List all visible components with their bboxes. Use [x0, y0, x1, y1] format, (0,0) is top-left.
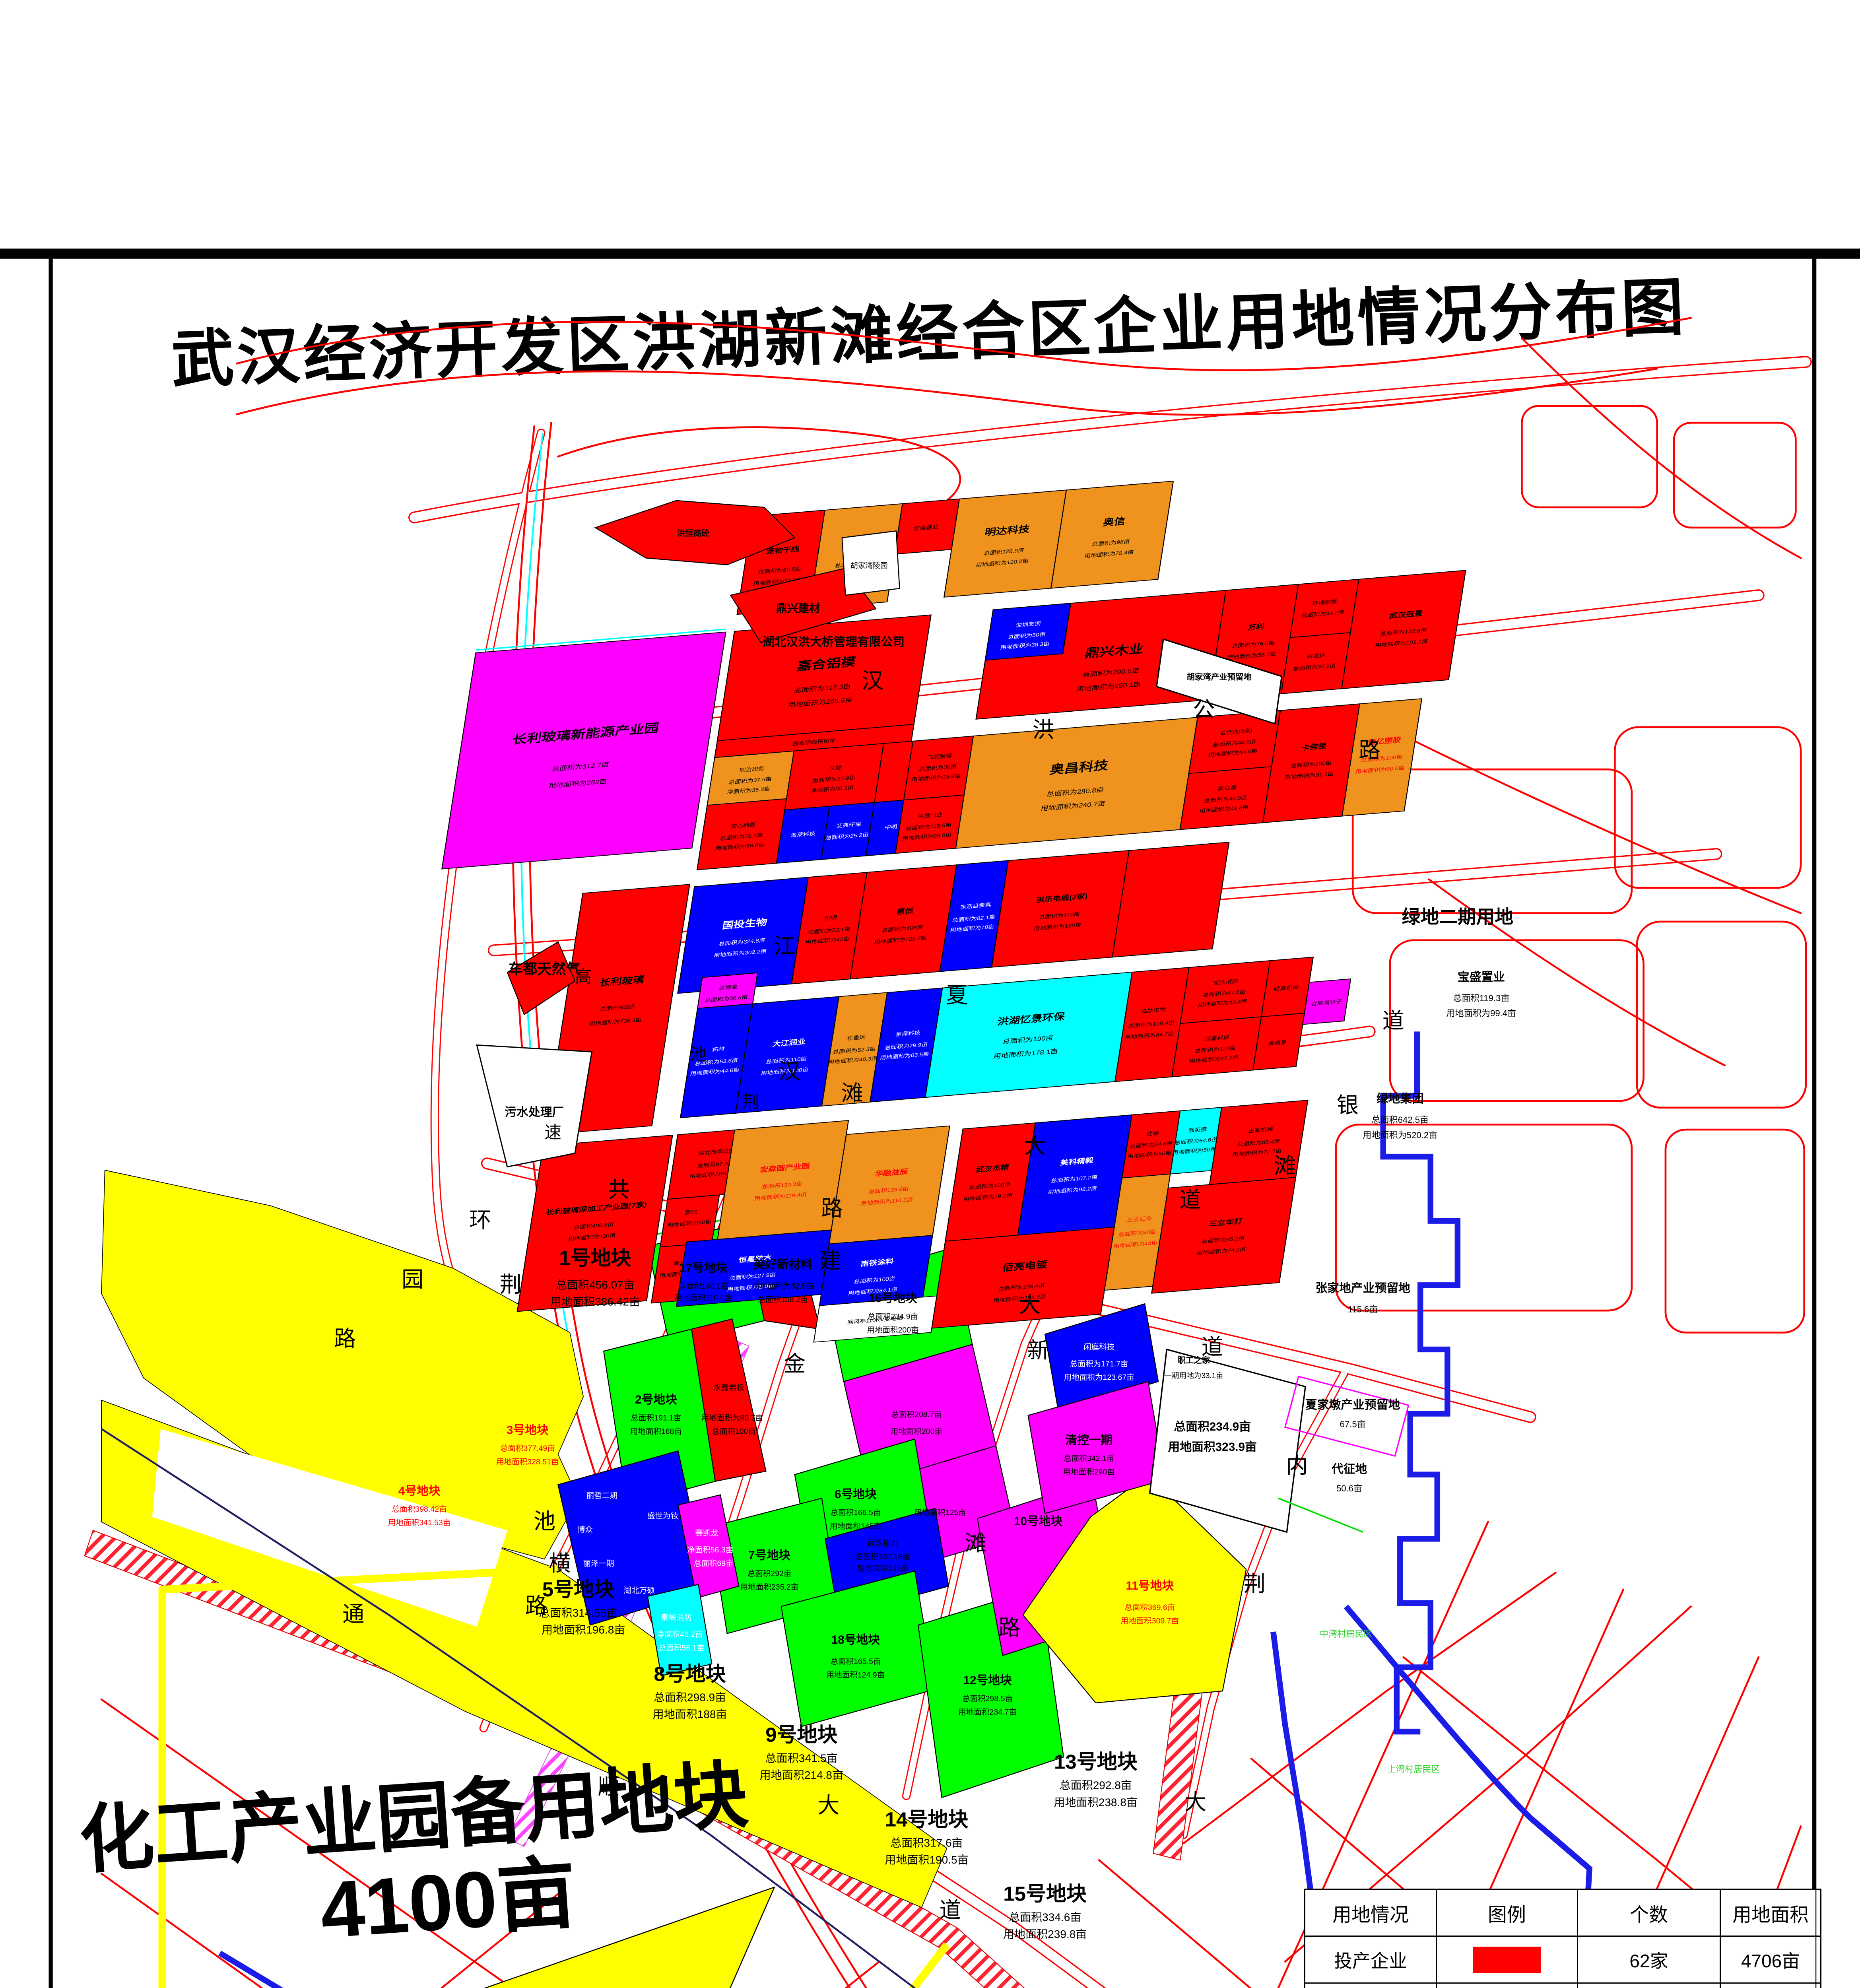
- svg-text:总面积341.5亩: 总面积341.5亩: [765, 1752, 838, 1765]
- svg-text:赛凯龙: 赛凯龙: [695, 1529, 718, 1538]
- boundary-blue-southwest: [220, 1953, 482, 1988]
- label-sewage-plant: 污水处理厂: [505, 1106, 564, 1119]
- industrial-parcel: 华融益辰总面积133.9亩用地面积为110.3亩: [829, 1126, 949, 1244]
- svg-text:用地面积196.8亩: 用地面积196.8亩: [542, 1623, 625, 1636]
- svg-text:绿地集团: 绿地集团: [1377, 1092, 1424, 1105]
- svg-text:总面积398.42亩: 总面积398.42亩: [392, 1505, 447, 1514]
- svg-text:2号地块: 2号地块: [635, 1393, 677, 1406]
- legend-count: 24家: [1578, 1983, 1720, 1988]
- svg-text:滩: 滩: [841, 1081, 863, 1106]
- svg-text:池: 池: [534, 1509, 555, 1534]
- industrial-parcel: 奥亿鑫总面积为46.0亩用地面积为41.8亩: [1180, 767, 1272, 830]
- legend-area: 4706亩: [1720, 1936, 1821, 1983]
- svg-text:总面积342.1亩: 总面积342.1亩: [1064, 1454, 1114, 1463]
- svg-text:路: 路: [334, 1326, 356, 1351]
- svg-text:用地面积为82.5亩: 用地面积为82.5亩: [752, 1282, 814, 1291]
- legend-label: 投产企业: [1305, 1936, 1437, 1983]
- svg-text:夏家墩产业预留地: 夏家墩产业预留地: [1305, 1398, 1400, 1411]
- svg-text:总面积108.2亩: 总面积108.2亩: [757, 1295, 808, 1304]
- svg-text:胡家湾产业预留地: 胡家湾产业预留地: [1187, 672, 1252, 682]
- svg-text:用地面积235.2亩: 用地面积235.2亩: [740, 1583, 799, 1592]
- legend-header: 个数: [1578, 1889, 1720, 1936]
- svg-text:一期用地为33.1亩: 一期用地为33.1亩: [1164, 1371, 1223, 1380]
- svg-text:总面积208.7亩: 总面积208.7亩: [891, 1410, 942, 1419]
- industrial-parcel: 奥信总面积为98亩用地面积为75.4亩: [1051, 481, 1173, 588]
- svg-text:宝盛置业: 宝盛置业: [1458, 970, 1505, 984]
- svg-text:武汉柏力: 武汉柏力: [867, 1539, 898, 1547]
- svg-text:园: 园: [402, 1267, 423, 1292]
- svg-text:代征地: 代征地: [1331, 1462, 1367, 1475]
- svg-text:荆: 荆: [500, 1272, 522, 1297]
- industrial-parcel: 三立车灯总面积为95.2亩用地面积为74.2亩: [1151, 1177, 1295, 1293]
- svg-text:永鑫岩板: 永鑫岩板: [713, 1383, 744, 1392]
- label-village-shangwan: 上湾村居民区: [1387, 1764, 1440, 1774]
- svg-text:4号地块: 4号地块: [398, 1485, 441, 1498]
- svg-text:丽哲二期: 丽哲二期: [586, 1491, 617, 1500]
- svg-text:用地面积238.8亩: 用地面积238.8亩: [1054, 1796, 1138, 1808]
- svg-text:张家地产业预留地: 张家地产业预留地: [1316, 1281, 1410, 1295]
- svg-text:道: 道: [1179, 1188, 1201, 1212]
- svg-text:路: 路: [821, 1196, 843, 1221]
- industrial-parcel: 兰盾门业总面积为115.5亩用地面积为98.6亩: [895, 795, 964, 853]
- svg-text:闲庭科技: 闲庭科技: [1083, 1343, 1114, 1351]
- svg-text:11号地块: 11号地块: [1126, 1579, 1174, 1592]
- svg-text:6号地块: 6号地块: [835, 1488, 877, 1501]
- svg-text:总面积56.1亩: 总面积56.1亩: [658, 1644, 705, 1652]
- industrial-parcel: 嘉合铝模总面积为312.3亩用地面积为265.6亩: [717, 615, 931, 741]
- svg-text:横: 横: [549, 1551, 571, 1576]
- svg-text:用地面积323.9亩: 用地面积323.9亩: [1168, 1440, 1257, 1454]
- map-canvas: 武汉经济开发区洪湖新滩经合区企业用地情况分布图: [0, 0, 1860, 1988]
- svg-text:江: 江: [774, 934, 796, 959]
- svg-text:汉: 汉: [779, 1059, 800, 1083]
- svg-text:创明: 创明: [824, 914, 838, 922]
- svg-text:用地面积309.7亩: 用地面积309.7亩: [1121, 1617, 1179, 1625]
- svg-text:惠恒: 惠恒: [896, 907, 914, 916]
- svg-text:用地面积328.51亩: 用地面积328.51亩: [496, 1458, 559, 1466]
- svg-text:总面积314.58亩: 总面积314.58亩: [539, 1607, 617, 1619]
- svg-text:优睿: 优睿: [1146, 1130, 1160, 1138]
- svg-text:大: 大: [817, 1793, 839, 1817]
- svg-text:荆: 荆: [742, 1093, 759, 1112]
- industrial-parcel: 冠嘉科技总面积为120亩用地面积为97.7亩: [1172, 1017, 1261, 1077]
- svg-text:5号地块: 5号地块: [542, 1578, 614, 1601]
- industrial-parcel: [1113, 842, 1229, 957]
- svg-text:18号地块: 18号地块: [831, 1633, 880, 1646]
- svg-text:总面积298.5亩: 总面积298.5亩: [962, 1695, 1013, 1703]
- svg-text:1号地块: 1号地块: [559, 1246, 631, 1269]
- svg-text:总面积166.5亩: 总面积166.5亩: [830, 1508, 881, 1517]
- svg-text:17号地块: 17号地块: [679, 1261, 728, 1274]
- industrial-parcel: 壹兴用地面积为30亩: [660, 1195, 719, 1247]
- svg-text:总面积642.5亩: 总面积642.5亩: [1371, 1115, 1429, 1125]
- swatch-red: [1473, 1947, 1541, 1973]
- svg-text:总面积234.9亩: 总面积234.9亩: [868, 1312, 918, 1321]
- svg-text:总面积234.9亩: 总面积234.9亩: [1174, 1420, 1251, 1433]
- svg-text:12号地块: 12号地块: [963, 1674, 1012, 1687]
- svg-text:8号地块: 8号地块: [654, 1663, 726, 1685]
- industrial-parcel: 奥昌科技总面积为280.8亩用地面积为240.7亩: [956, 717, 1198, 848]
- svg-text:路: 路: [1359, 738, 1380, 762]
- svg-text:总面积317.6亩: 总面积317.6亩: [890, 1837, 963, 1849]
- svg-text:通: 通: [342, 1602, 364, 1627]
- svg-text:总面积69亩: 总面积69亩: [694, 1559, 734, 1568]
- svg-text:净面积46.2亩: 净面积46.2亩: [656, 1630, 703, 1639]
- industrial-parcel: 明达科技总面积128.9亩用地面积为120.2亩: [944, 490, 1066, 597]
- svg-text:丽泽一期: 丽泽一期: [583, 1559, 614, 1568]
- svg-text:总面积140.1亩: 总面积140.1亩: [678, 1282, 729, 1291]
- industrial-parcel: 美科精毅总面积为107.2亩用地面积为98.2亩: [1018, 1115, 1132, 1235]
- svg-text:用地面积234.7亩: 用地面积234.7亩: [958, 1708, 1017, 1717]
- svg-text:洪: 洪: [1032, 717, 1054, 742]
- svg-text:总面积167.18亩: 总面积167.18亩: [855, 1552, 910, 1561]
- svg-text:滩: 滩: [965, 1531, 986, 1555]
- legend-swatch-cell: [1437, 1936, 1578, 1983]
- svg-text:总面积298.9亩: 总面积298.9亩: [654, 1691, 726, 1704]
- svg-text:总面积377.49亩: 总面积377.49亩: [500, 1444, 555, 1453]
- svg-text:总面积456.07亩: 总面积456.07亩: [556, 1279, 635, 1291]
- svg-text:秦峡消防: 秦峡消防: [661, 1613, 692, 1622]
- legend-area: 1593亩: [1720, 1983, 1821, 1988]
- label-bridge-company: 湖北汉洪大桥管理有限公司: [763, 636, 905, 649]
- svg-text:7号地块: 7号地块: [748, 1549, 790, 1562]
- svg-text:内: 内: [1286, 1453, 1308, 1477]
- svg-text:高: 高: [575, 968, 592, 986]
- svg-text:用地面积145亩: 用地面积145亩: [830, 1522, 881, 1531]
- industrial-grid: 宠物干线总面积为59.5亩用地面积为52.8亩 宏朗总面积为59亩用地面积为53…: [362, 455, 1484, 1380]
- industrial-parcel: 思博盈总面积为36.6亩: [697, 973, 757, 1008]
- svg-text:大: 大: [1024, 1134, 1046, 1158]
- svg-text:用地面积190.5亩: 用地面积190.5亩: [885, 1854, 968, 1866]
- svg-text:13号地块: 13号地块: [1054, 1751, 1138, 1773]
- svg-text:新: 新: [1027, 1338, 1049, 1363]
- legend-row: 在建企业 24家 1593亩: [1305, 1983, 1821, 1988]
- svg-text:用地面积200亩: 用地面积200亩: [867, 1326, 918, 1334]
- svg-text:用地面积168亩: 用地面积168亩: [630, 1427, 682, 1436]
- svg-text:公: 公: [1193, 697, 1215, 722]
- svg-text:湖北万硕: 湖北万硕: [623, 1586, 654, 1595]
- svg-text:荆: 荆: [1244, 1571, 1266, 1596]
- svg-text:路: 路: [525, 1593, 547, 1618]
- map-page: 武汉经济开发区洪湖新滩经合区企业用地情况分布图: [0, 0, 1860, 1988]
- industrial-parcel: 同治印务总面积为37.9亩净面积为35.3亩: [707, 751, 794, 806]
- industrial-parcel: 飞燕鹏程总面积为30亩用地面积为23.8亩: [904, 736, 973, 800]
- svg-text:滩: 滩: [1274, 1154, 1296, 1178]
- svg-text:大: 大: [1019, 1292, 1041, 1317]
- svg-text:鼎兴建材: 鼎兴建材: [776, 602, 820, 615]
- legend-header-row: 用地情况 图例 个数 用地面积: [1305, 1889, 1821, 1936]
- svg-text:盛世为钕: 盛世为钕: [647, 1512, 678, 1520]
- svg-text:总面积119.3亩: 总面积119.3亩: [1453, 993, 1509, 1003]
- svg-text:总面积为171.7亩: 总面积为171.7亩: [1070, 1359, 1128, 1368]
- svg-text:总面积292亩: 总面积292亩: [747, 1569, 792, 1578]
- svg-text:万利: 万利: [1246, 623, 1265, 632]
- svg-text:路: 路: [998, 1615, 1020, 1640]
- industrial-parcel: 宏业消防总面积为47.5亩用地面积为42.4亩: [1180, 961, 1270, 1023]
- industrial-parcel: 深圳宏钢总面积为50亩用地面积为38.3亩: [985, 603, 1071, 660]
- svg-text:用地面积386.42亩: 用地面积386.42亩: [550, 1295, 640, 1308]
- svg-text:池: 池: [690, 1046, 707, 1064]
- svg-text:大: 大: [1184, 1790, 1206, 1814]
- svg-text:壹兴: 壹兴: [684, 1209, 698, 1216]
- svg-text:用地面积188亩: 用地面积188亩: [653, 1708, 727, 1720]
- svg-text:115.6亩: 115.6亩: [1348, 1304, 1378, 1314]
- svg-text:道: 道: [1382, 1008, 1404, 1033]
- svg-text:67.5亩: 67.5亩: [1340, 1419, 1366, 1429]
- svg-text:博众: 博众: [577, 1525, 593, 1534]
- svg-text:总面积369.6亩: 总面积369.6亩: [1124, 1603, 1175, 1612]
- svg-text:清控一期: 清控一期: [1065, 1434, 1113, 1447]
- svg-text:总面积100亩: 总面积100亩: [712, 1427, 756, 1436]
- industrial-parcel: 环博摩擦总面积为34.2亩: [1290, 579, 1359, 638]
- industrial-parcel: 金鑫星: [1253, 1013, 1304, 1070]
- svg-text:用地面积为80.7亩: 用地面积为80.7亩: [701, 1414, 763, 1423]
- legend-header: 图例: [1437, 1889, 1578, 1936]
- svg-text:用地面积为520.2亩: 用地面积为520.2亩: [1363, 1130, 1437, 1140]
- svg-text:用地面积124.9亩: 用地面积124.9亩: [827, 1671, 885, 1679]
- svg-text:中明: 中明: [884, 824, 898, 831]
- svg-text:用地面积110.6亩: 用地面积110.6亩: [675, 1294, 732, 1303]
- industrial-parcel: 惠恒总面积为108亩用地面积为102.7亩: [850, 865, 957, 979]
- svg-text:总面积334.6亩: 总面积334.6亩: [1009, 1911, 1081, 1923]
- svg-text:美好新材料: 美好新材料: [753, 1258, 813, 1271]
- label-cemetery: 胡家湾陵园: [850, 561, 888, 570]
- svg-text:50.6亩: 50.6亩: [1336, 1483, 1362, 1493]
- svg-text:用地面积为123.67亩: 用地面积为123.67亩: [1064, 1373, 1134, 1382]
- industrial-parcel: 洪乐电缆(2家)总面积为170亩用地面积为150亩: [992, 850, 1129, 967]
- svg-text:总面积191.1亩: 总面积191.1亩: [631, 1414, 681, 1423]
- svg-text:总面积292.8亩: 总面积292.8亩: [1060, 1779, 1132, 1792]
- svg-text:共: 共: [608, 1177, 630, 1202]
- industrial-parcel: 安心地板总面积为78.1亩用地面积为66.8亩: [697, 799, 786, 870]
- legend-header: 用地面积: [1720, 1889, 1821, 1936]
- svg-text:用地面积341.53亩: 用地面积341.53亩: [388, 1518, 451, 1527]
- svg-text:速: 速: [544, 1123, 561, 1142]
- annotation-line2: 4100亩: [317, 1848, 579, 1955]
- svg-text:10号地块: 10号地块: [1014, 1515, 1063, 1528]
- industrial-parcel: 兴龙达总面积为37.9亩: [1281, 633, 1350, 694]
- industrial-parcel: 武汉冠景总面积为122.6亩用地面积为102.1亩: [1342, 570, 1466, 689]
- svg-text:夏: 夏: [946, 983, 968, 1008]
- svg-text:用地面积125亩: 用地面积125亩: [914, 1508, 966, 1517]
- svg-text:用地面积200亩: 用地面积200亩: [891, 1427, 942, 1436]
- svg-text:拓材: 拓材: [712, 1046, 725, 1053]
- svg-text:洪恒商砼: 洪恒商砼: [677, 528, 710, 538]
- industrial-parcel: 宏盛基业: [895, 499, 959, 554]
- legend-count: 62家: [1578, 1936, 1720, 1983]
- svg-text:用地面积214.8亩: 用地面积214.8亩: [760, 1769, 843, 1781]
- svg-text:久胜: 久胜: [829, 765, 843, 772]
- svg-text:汉: 汉: [862, 668, 883, 693]
- label-lvdi-phase2: 绿地二期用地: [1402, 907, 1514, 927]
- legend-label: 在建企业: [1305, 1983, 1437, 1988]
- svg-text:车都天然气: 车都天然气: [509, 961, 581, 977]
- svg-text:用地面积为99.4亩: 用地面积为99.4亩: [1446, 1008, 1516, 1018]
- svg-text:14号地块: 14号地块: [885, 1808, 969, 1831]
- svg-text:9号地块: 9号地块: [765, 1724, 837, 1746]
- label-village-zhongwan: 中湾村居民区: [1320, 1629, 1373, 1639]
- svg-text:16号地块: 16号地块: [868, 1292, 917, 1305]
- legend-header: 用地情况: [1305, 1889, 1437, 1936]
- svg-text:金: 金: [784, 1351, 806, 1376]
- legend-table: 用地情况 图例 个数 用地面积 投产企业 62家 4706亩 在建企业 24家 …: [1304, 1889, 1815, 1988]
- svg-text:用地面积290亩: 用地面积290亩: [1063, 1468, 1115, 1477]
- svg-text:15号地块: 15号地块: [1003, 1882, 1087, 1905]
- svg-text:净面积56.3亩: 净面积56.3亩: [687, 1545, 733, 1554]
- industrial-parcel: 长利玻璃新能源产业园总面积为312.7亩用地面积为282亩: [442, 632, 726, 869]
- svg-text:银: 银: [1337, 1093, 1359, 1118]
- industrial-parcel: 久胜总面积为37.9亩净面积为35.3亩: [785, 744, 884, 810]
- svg-text:总面积165.5亩: 总面积165.5亩: [830, 1657, 881, 1666]
- svg-text:3号地块: 3号地块: [507, 1424, 549, 1437]
- svg-text:道: 道: [1202, 1335, 1223, 1359]
- svg-text:建: 建: [819, 1248, 841, 1273]
- svg-text:道: 道: [939, 1898, 961, 1922]
- industrial-parcel: 宏森圆产业园总面积130.3亩用地面积为119.4亩: [718, 1120, 848, 1239]
- svg-text:环: 环: [469, 1208, 491, 1233]
- industrial-parcel: 合晟高分子: [1303, 979, 1351, 1025]
- legend-row: 投产企业 62家 4706亩: [1305, 1936, 1821, 1983]
- svg-text:用地面积239.8亩: 用地面积239.8亩: [1003, 1928, 1087, 1940]
- svg-text:用地面积138亩: 用地面积138亩: [857, 1564, 909, 1573]
